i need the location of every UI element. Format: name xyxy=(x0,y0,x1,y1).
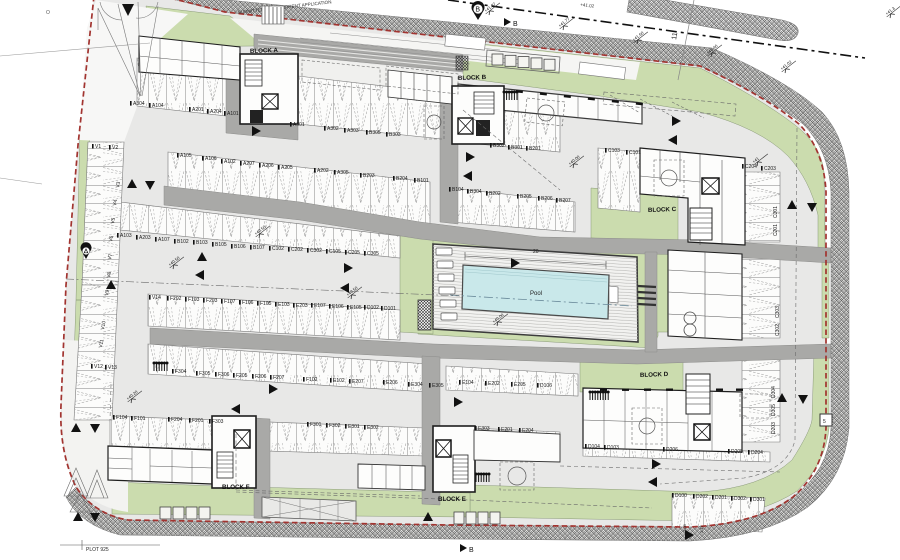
svg-text:V3: V3 xyxy=(115,181,122,188)
svg-text:A101: A101 xyxy=(227,111,239,117)
svg-text:B102: B102 xyxy=(177,239,189,245)
svg-text:D304: D304 xyxy=(771,386,777,398)
svg-text:E205: E205 xyxy=(514,382,526,388)
svg-text:F302: F302 xyxy=(329,423,341,429)
svg-text:5: 5 xyxy=(823,419,826,425)
svg-text:V4: V4 xyxy=(112,199,119,206)
svg-text:D206: D206 xyxy=(666,447,678,453)
svg-text:2.17: 2.17 xyxy=(699,524,704,533)
svg-text:F104: F104 xyxy=(116,415,128,421)
svg-text:E302: E302 xyxy=(367,425,379,431)
svg-text:C202: C202 xyxy=(291,247,303,253)
svg-text:A207: A207 xyxy=(243,161,255,167)
svg-text:F202: F202 xyxy=(170,296,182,302)
svg-text:E201: E201 xyxy=(501,427,513,433)
svg-text:E106: E106 xyxy=(332,304,344,310)
svg-text:B202: B202 xyxy=(489,191,501,197)
svg-text:A206: A206 xyxy=(262,163,274,169)
svg-text:B201: B201 xyxy=(529,146,541,152)
svg-text:B101: B101 xyxy=(417,178,429,184)
svg-text:V5: V5 xyxy=(110,217,117,224)
svg-text:D205: D205 xyxy=(731,449,743,455)
svg-text:BLOCK A: BLOCK A xyxy=(250,47,279,55)
svg-text:C205: C205 xyxy=(348,250,360,256)
svg-text:B302: B302 xyxy=(493,143,505,149)
svg-text:B303: B303 xyxy=(389,132,401,138)
svg-text:F204: F204 xyxy=(171,417,183,423)
svg-text:BLOCK E: BLOCK E xyxy=(438,496,466,503)
svg-text:A104: A104 xyxy=(152,103,164,109)
svg-text:V6: V6 xyxy=(108,235,115,242)
svg-text:E305: E305 xyxy=(432,383,444,389)
svg-text:A105: A105 xyxy=(180,153,192,159)
svg-text:D100: D100 xyxy=(675,493,687,499)
svg-text:F105: F105 xyxy=(260,301,272,307)
svg-text:V12: V12 xyxy=(94,364,103,370)
svg-text:A204: A204 xyxy=(210,109,222,115)
svg-text:V1: V1 xyxy=(95,144,101,150)
svg-text:F107: F107 xyxy=(224,299,236,305)
svg-text:B105: B105 xyxy=(215,242,227,248)
svg-text:V8: V8 xyxy=(106,271,113,278)
svg-text:A302: A302 xyxy=(327,126,339,132)
svg-text:A303: A303 xyxy=(347,128,359,134)
svg-text:D103: D103 xyxy=(607,445,619,451)
svg-text:A103: A103 xyxy=(120,233,132,239)
svg-text:F103: F103 xyxy=(188,297,200,303)
svg-text:D104: D104 xyxy=(588,444,600,450)
svg-text:C102: C102 xyxy=(272,246,284,252)
svg-text:C302: C302 xyxy=(775,324,781,336)
svg-text:B206: B206 xyxy=(541,196,553,202)
svg-text:E102: E102 xyxy=(333,378,345,384)
svg-text:F201: F201 xyxy=(192,418,204,424)
svg-text:E304: E304 xyxy=(411,382,423,388)
svg-text:BLOCK C: BLOCK C xyxy=(648,206,677,214)
svg-text:F301: F301 xyxy=(310,422,322,428)
svg-text:F106: F106 xyxy=(242,300,254,306)
svg-text:B107: B107 xyxy=(253,245,265,251)
svg-text:F206: F206 xyxy=(255,374,267,380)
svg-text:E207: E207 xyxy=(352,379,364,385)
svg-text:BLOCK F: BLOCK F xyxy=(222,484,250,491)
svg-text:V7: V7 xyxy=(107,253,114,260)
svg-text:B203: B203 xyxy=(363,173,375,179)
svg-text:C105: C105 xyxy=(329,249,341,255)
svg-text:B207: B207 xyxy=(559,198,571,204)
svg-text:20: 20 xyxy=(533,249,539,255)
svg-text:BLOCK D: BLOCK D xyxy=(640,371,669,379)
svg-text:F207: F207 xyxy=(273,375,285,381)
svg-text:F303: F303 xyxy=(212,419,224,425)
svg-text:A301: A301 xyxy=(293,122,305,128)
svg-text:E103: E103 xyxy=(278,302,290,308)
svg-text:BLOCK B: BLOCK B xyxy=(458,74,487,82)
svg-text:C204: C204 xyxy=(745,164,757,170)
svg-text:F205: F205 xyxy=(236,373,248,379)
svg-text:D305: D305 xyxy=(771,404,777,416)
svg-text:V14: V14 xyxy=(152,295,161,301)
svg-text:B204: B204 xyxy=(396,176,408,182)
svg-text:E105: E105 xyxy=(350,305,362,311)
svg-text:B: B xyxy=(513,21,518,28)
svg-text:C201: C201 xyxy=(773,224,779,236)
svg-text:A305: A305 xyxy=(337,170,349,176)
svg-text:V9: V9 xyxy=(104,289,111,296)
svg-text:D201: D201 xyxy=(715,495,727,501)
svg-text:B: B xyxy=(475,7,480,14)
svg-text:E204: E204 xyxy=(522,428,534,434)
svg-text:D301: D301 xyxy=(753,497,765,503)
svg-text:O: O xyxy=(46,10,50,16)
svg-text:A304: A304 xyxy=(133,101,145,107)
svg-text:F305: F305 xyxy=(199,371,211,377)
svg-text:F306: F306 xyxy=(218,372,230,378)
svg-text:C101: C101 xyxy=(629,150,641,156)
svg-text:A201: A201 xyxy=(192,107,204,113)
svg-text:V13: V13 xyxy=(108,365,117,371)
svg-text:A107: A107 xyxy=(158,237,170,243)
svg-text:E206: E206 xyxy=(386,380,398,386)
svg-text:B104: B104 xyxy=(452,187,464,193)
svg-text:C103: C103 xyxy=(608,148,620,154)
svg-text:B: B xyxy=(469,547,474,554)
svg-text:D106: D106 xyxy=(540,383,552,389)
svg-text:V2: V2 xyxy=(112,145,118,151)
svg-text:C305: C305 xyxy=(367,251,379,257)
svg-text:A106: A106 xyxy=(205,156,217,162)
svg-text:2.08: 2.08 xyxy=(682,523,687,532)
svg-text:D202: D202 xyxy=(696,494,708,500)
svg-text:C301: C301 xyxy=(773,206,779,218)
svg-text:D204: D204 xyxy=(751,450,763,456)
svg-text:B106: B106 xyxy=(234,244,246,250)
svg-text:F203: F203 xyxy=(206,298,218,304)
svg-text:D302: D302 xyxy=(734,496,746,502)
svg-text:C302: C302 xyxy=(310,248,322,254)
svg-text:D102: D102 xyxy=(367,305,379,311)
svg-text:E301: E301 xyxy=(348,424,360,430)
svg-text:A205: A205 xyxy=(281,165,293,171)
svg-text:B304: B304 xyxy=(470,189,482,195)
svg-text:B305: B305 xyxy=(369,130,381,136)
svg-text:PLOT 925: PLOT 925 xyxy=(86,547,109,553)
svg-text:E202: E202 xyxy=(488,381,500,387)
svg-text:B301: B301 xyxy=(511,145,523,151)
svg-text:A202: A202 xyxy=(317,168,329,174)
svg-text:E303: E303 xyxy=(478,426,490,432)
svg-text:D203: D203 xyxy=(771,422,777,434)
svg-text:C203: C203 xyxy=(764,166,776,172)
svg-text:B103: B103 xyxy=(196,240,208,246)
svg-text:E107: E107 xyxy=(314,303,326,309)
svg-text:E203: E203 xyxy=(296,303,308,309)
svg-text:F304: F304 xyxy=(175,369,187,375)
svg-text:B205: B205 xyxy=(520,194,532,200)
svg-text:A102: A102 xyxy=(224,159,236,165)
svg-text:C303: C303 xyxy=(775,306,781,318)
svg-text:11: 11 xyxy=(671,32,679,40)
svg-text:E104: E104 xyxy=(462,380,474,386)
svg-text:A203: A203 xyxy=(139,235,151,241)
svg-text:F101: F101 xyxy=(134,416,146,422)
svg-text:Pool: Pool xyxy=(530,291,542,297)
svg-text:D101: D101 xyxy=(384,306,396,312)
svg-text:F102: F102 xyxy=(306,377,318,383)
